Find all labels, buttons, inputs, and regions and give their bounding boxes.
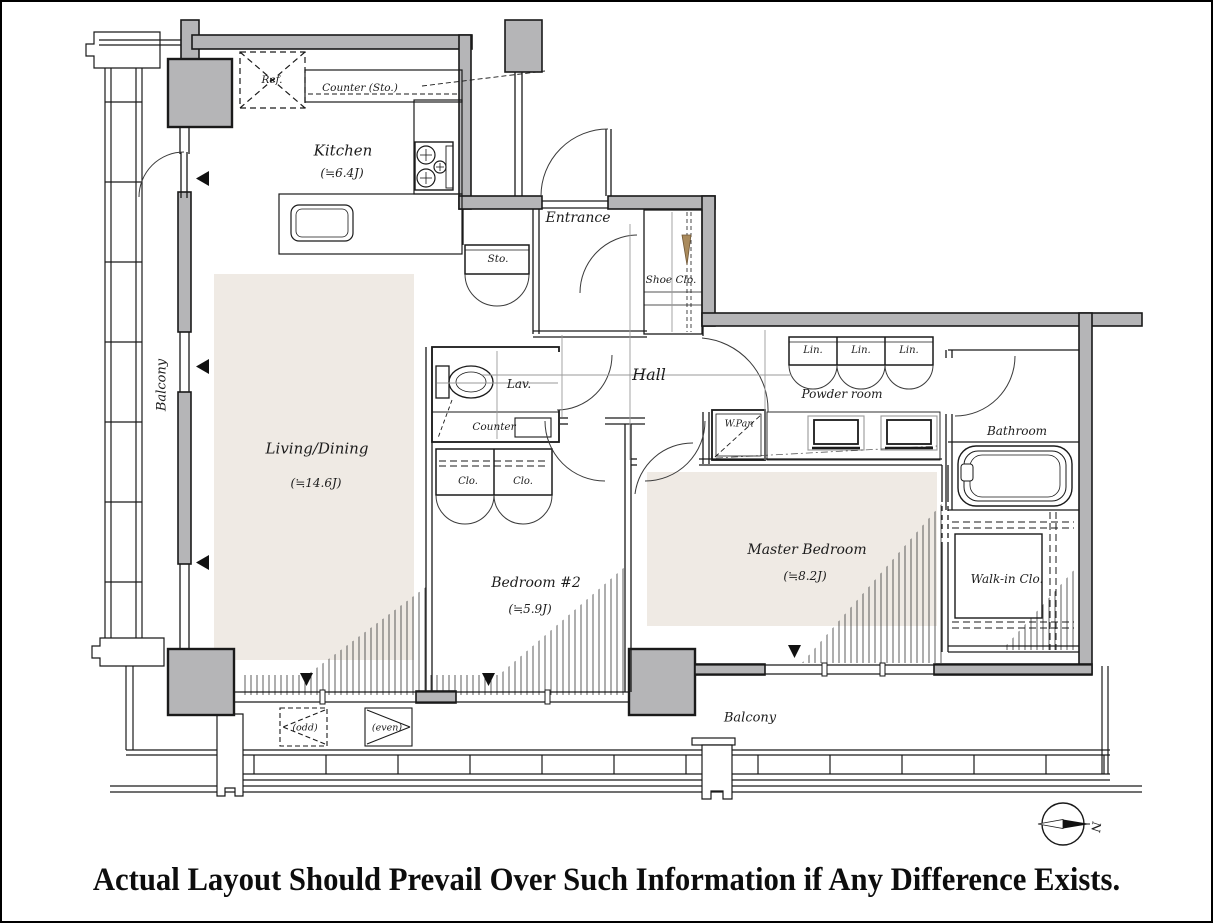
room-floor-fills	[214, 274, 937, 660]
closet-label-1: Clo.	[458, 477, 478, 487]
storage-label: Sto.	[488, 254, 509, 265]
master-bedroom-label: Master Bedroom	[747, 543, 866, 557]
hall-label: Hall	[632, 367, 666, 383]
washer-pan-label: W.Pan	[725, 419, 754, 429]
shoe-closet-box	[644, 210, 702, 334]
shoe-closet-umbrella	[682, 235, 691, 265]
counter-sto-label: Counter (Sto.)	[322, 83, 398, 94]
linen-label-1: Lin.	[803, 346, 822, 356]
bathroom-door-arc	[955, 356, 1015, 416]
closet-label-2: Clo.	[513, 477, 533, 487]
bedroom2-size-label: (≒5.9J)	[508, 603, 551, 615]
living-dining-size-label: (≒14.6J)	[291, 477, 342, 489]
kitchen-label: Kitchen	[314, 144, 373, 159]
shoe-closet-label: Shoe Clo.	[646, 275, 697, 286]
trunk-even-label: (even)	[372, 723, 402, 733]
compass-icon	[1038, 803, 1090, 845]
closet-door-arcs	[436, 495, 465, 524]
entrance-label: Entrance	[545, 211, 610, 225]
living-dining-label: Living/Dining	[266, 442, 369, 457]
storage-door-arc	[465, 274, 497, 306]
shoe-closet-door-arc	[580, 235, 637, 293]
bedroom2-door-arc	[545, 421, 605, 481]
entrance-door-arc	[541, 129, 608, 196]
linen-label-2: Lin.	[851, 346, 870, 356]
tub-faucet	[961, 464, 973, 481]
walkin-closet-label: Walk-in Clo.	[971, 573, 1044, 585]
lavatory-label: Lav.	[507, 378, 531, 390]
linen-door-arcs	[789, 365, 813, 389]
kitchen-size-label: (≒6.4J)	[320, 167, 363, 179]
linen-label-3: Lin.	[899, 346, 918, 356]
balcony-door-arc	[139, 152, 184, 197]
floorplan: Kitchen (≒6.4J) Ref. Counter (Sto.) Entr…	[0, 0, 1213, 923]
disclaimer-caption: Actual Layout Should Prevail Over Such I…	[44, 862, 1168, 899]
master-bedroom-size-label: (≒8.2J)	[783, 570, 826, 582]
bedroom2-label: Bedroom #2	[491, 576, 580, 590]
kitchen-sink-symbol	[291, 205, 353, 241]
bathroom-label: Bathroom	[987, 425, 1047, 437]
bathtub	[958, 446, 1072, 506]
toilet-tank	[436, 366, 449, 398]
powder-room-label: Powder room	[802, 388, 883, 400]
compass-north-label: N	[1089, 821, 1102, 833]
lav-counter-label: Counter	[472, 422, 515, 433]
trunk-odd-label: (odd)	[292, 723, 317, 733]
refrigerator-label: Ref.	[262, 75, 283, 86]
balcony-bottom-label: Balcony	[724, 712, 776, 725]
balcony-left-label: Balcony	[156, 359, 169, 411]
lavatory-door-arc	[557, 355, 612, 410]
